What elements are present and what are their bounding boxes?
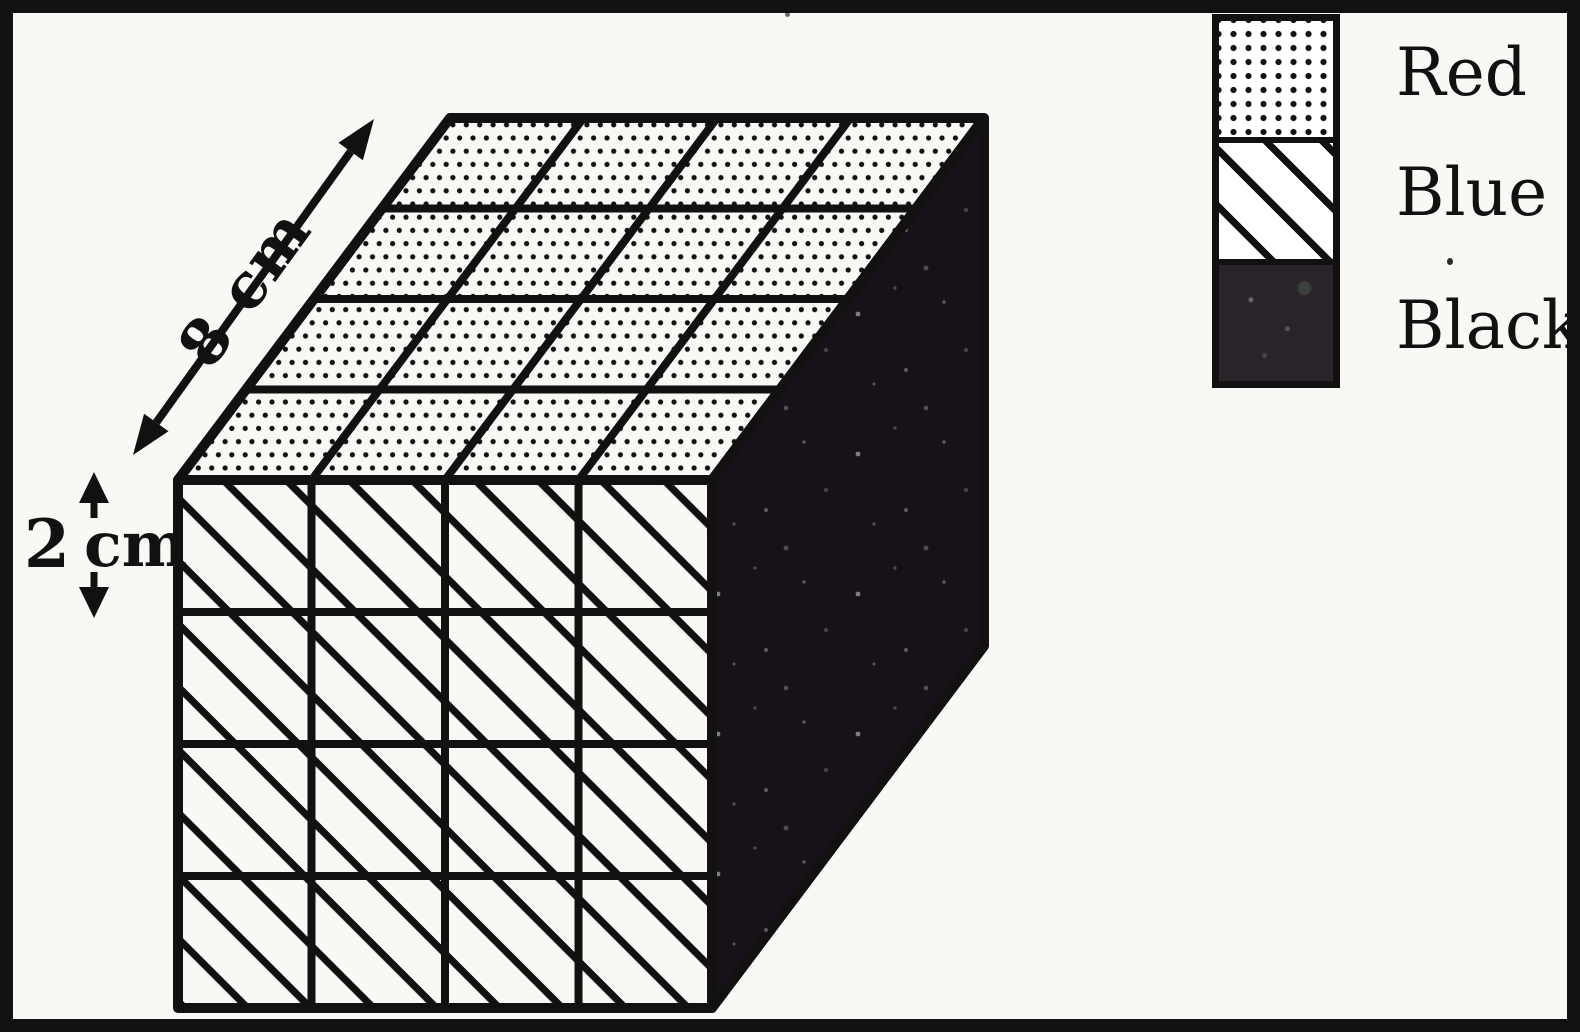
height-dimension-value: 2 [24,511,70,577]
legend-label-blue: Blue [1396,160,1547,226]
height-dimension-unit: cm [84,514,187,576]
legend-swatch-black [1219,259,1333,381]
legend-label-black: Black [1396,293,1580,359]
cube-diagram [0,0,1580,1032]
scanned-figure-page: 8 cm 2 cm Red Blue Black [0,0,1580,1032]
legend-label-red: Red [1396,40,1527,106]
legend-swatch-red [1219,21,1333,137]
cube-front-face-blue [178,480,712,1008]
scan-speck [1447,258,1453,265]
legend-swatch-blue [1219,137,1333,259]
legend [1212,14,1340,388]
scan-speck [785,12,790,17]
